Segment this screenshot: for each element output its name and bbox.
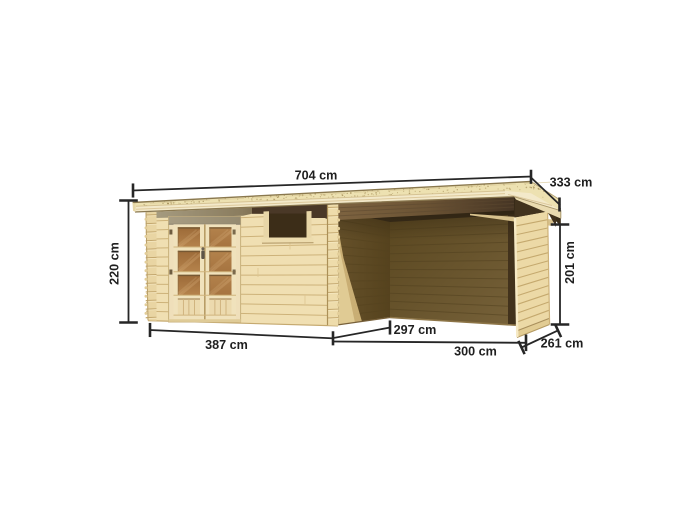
svg-text:201 cm: 201 cm	[563, 241, 577, 284]
svg-text:297 cm: 297 cm	[394, 323, 437, 337]
svg-text:300 cm: 300 cm	[454, 345, 497, 359]
svg-text:704 cm: 704 cm	[295, 169, 338, 183]
svg-text:220 cm: 220 cm	[108, 242, 122, 285]
svg-text:333 cm: 333 cm	[550, 176, 593, 190]
svg-text:261 cm: 261 cm	[541, 337, 584, 351]
svg-text:387 cm: 387 cm	[205, 338, 248, 352]
